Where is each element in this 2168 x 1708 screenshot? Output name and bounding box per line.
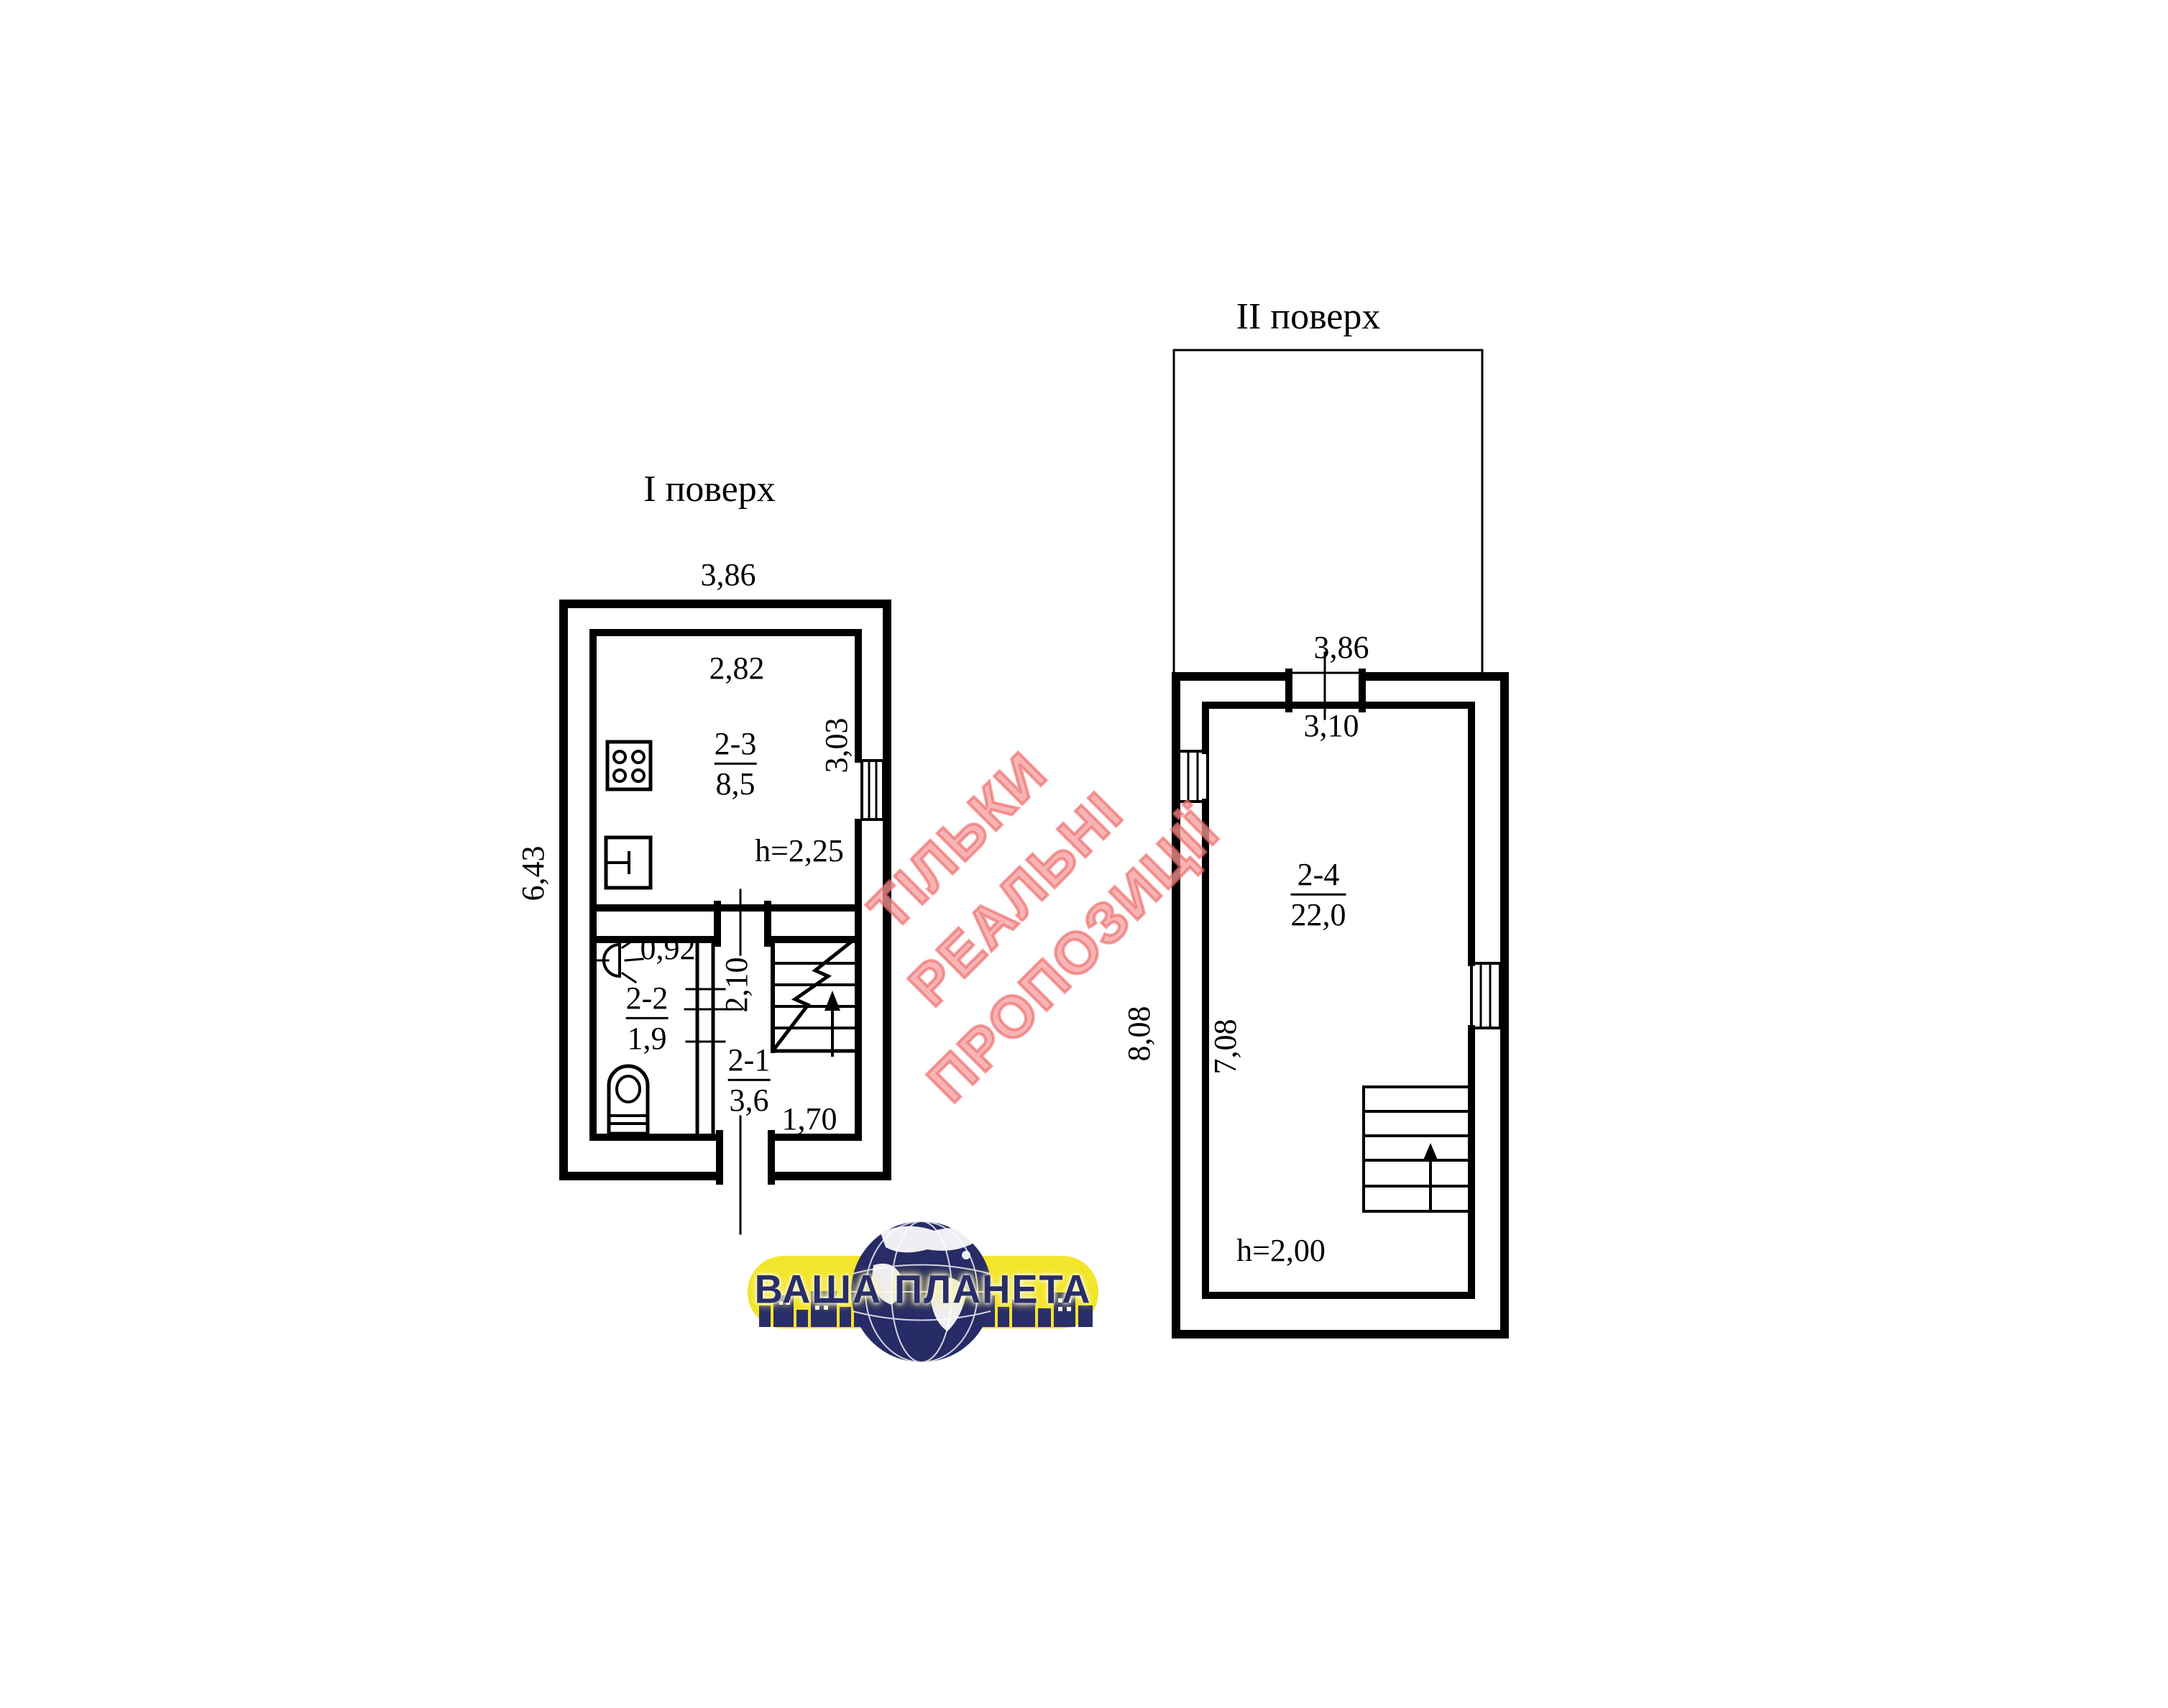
bathroom-room-label: 2-2 1,9 [626,982,669,1055]
toilet-icon [609,1066,648,1134]
window-hatch-icon [1179,751,1211,802]
floor2-room-label: 2-4 22,0 [1291,858,1346,932]
floor2-plan [1174,350,1505,1334]
sink-icon [606,837,651,888]
fraction-bar [1291,894,1346,896]
bathroom-room-number: 2-2 [626,982,669,1015]
floor2-room-dim-height: 7,08 [1210,1019,1241,1075]
floorplan-drawing [0,0,2168,1708]
stove-icon [607,742,651,789]
floor1-plan [564,604,887,1234]
floor1-inner-wall [593,633,858,1137]
hallway-dim-width: 1,70 [782,1103,837,1135]
floor1-outer-wall [564,604,887,1176]
kitchen-ceiling-height: h=2,25 [755,835,844,867]
floor2-dim-top-width: 3,86 [1314,632,1369,664]
kitchen-room-area: 8,5 [716,768,755,801]
stairs-up-icon [1364,1087,1468,1211]
entrance-door [720,1116,771,1234]
floor2-ceiling-height: h=2,00 [1236,1235,1326,1267]
fraction-bar [715,763,757,765]
kitchen-dim-width: 2,82 [709,653,765,684]
bathroom-door-width: 0,92 [640,933,696,965]
kitchen-dim-height: 3,03 [821,718,853,773]
agency-logo-title: ВАША ПЛАНЕТА [755,1266,1092,1313]
hallway-room-label: 2-1 3,6 [728,1044,771,1117]
floor2-title: ІІ поверх [1236,298,1381,336]
kitchen-room-label: 2-3 8,5 [715,727,757,801]
fraction-bar [728,1079,771,1081]
floor2-room-area: 22,0 [1291,899,1346,932]
floor2-room-dim-width: 3,10 [1304,710,1359,742]
floor2-room-number: 2-4 [1297,858,1340,891]
stairs-up-icon [773,937,858,1055]
window-hatch-icon [853,761,883,819]
bathroom-room-area: 1,9 [628,1022,667,1055]
floor1-title: І поверх [643,471,775,508]
hallway-room-area: 3,6 [730,1084,769,1117]
floor2-outer-wall [1176,676,1505,1334]
floorplan-page: І поверх 3,86 6,43 2,82 3,03 2-3 8,5 h=2… [0,0,2168,1708]
kitchen-room-number: 2-3 [715,727,757,761]
floor2-dim-outer-height: 8,08 [1124,1006,1155,1062]
window-hatch-icon [1466,963,1500,1028]
hallway-dim-depth: 2,10 [721,958,753,1013]
floor2-roof-outline [1174,350,1482,676]
floor1-dim-top-width: 3,86 [701,559,756,591]
hallway-room-number: 2-1 [728,1044,771,1077]
fraction-bar [626,1017,669,1019]
floor1-dim-left-height: 6,43 [518,846,549,901]
wall-lamp-icon [593,939,643,982]
